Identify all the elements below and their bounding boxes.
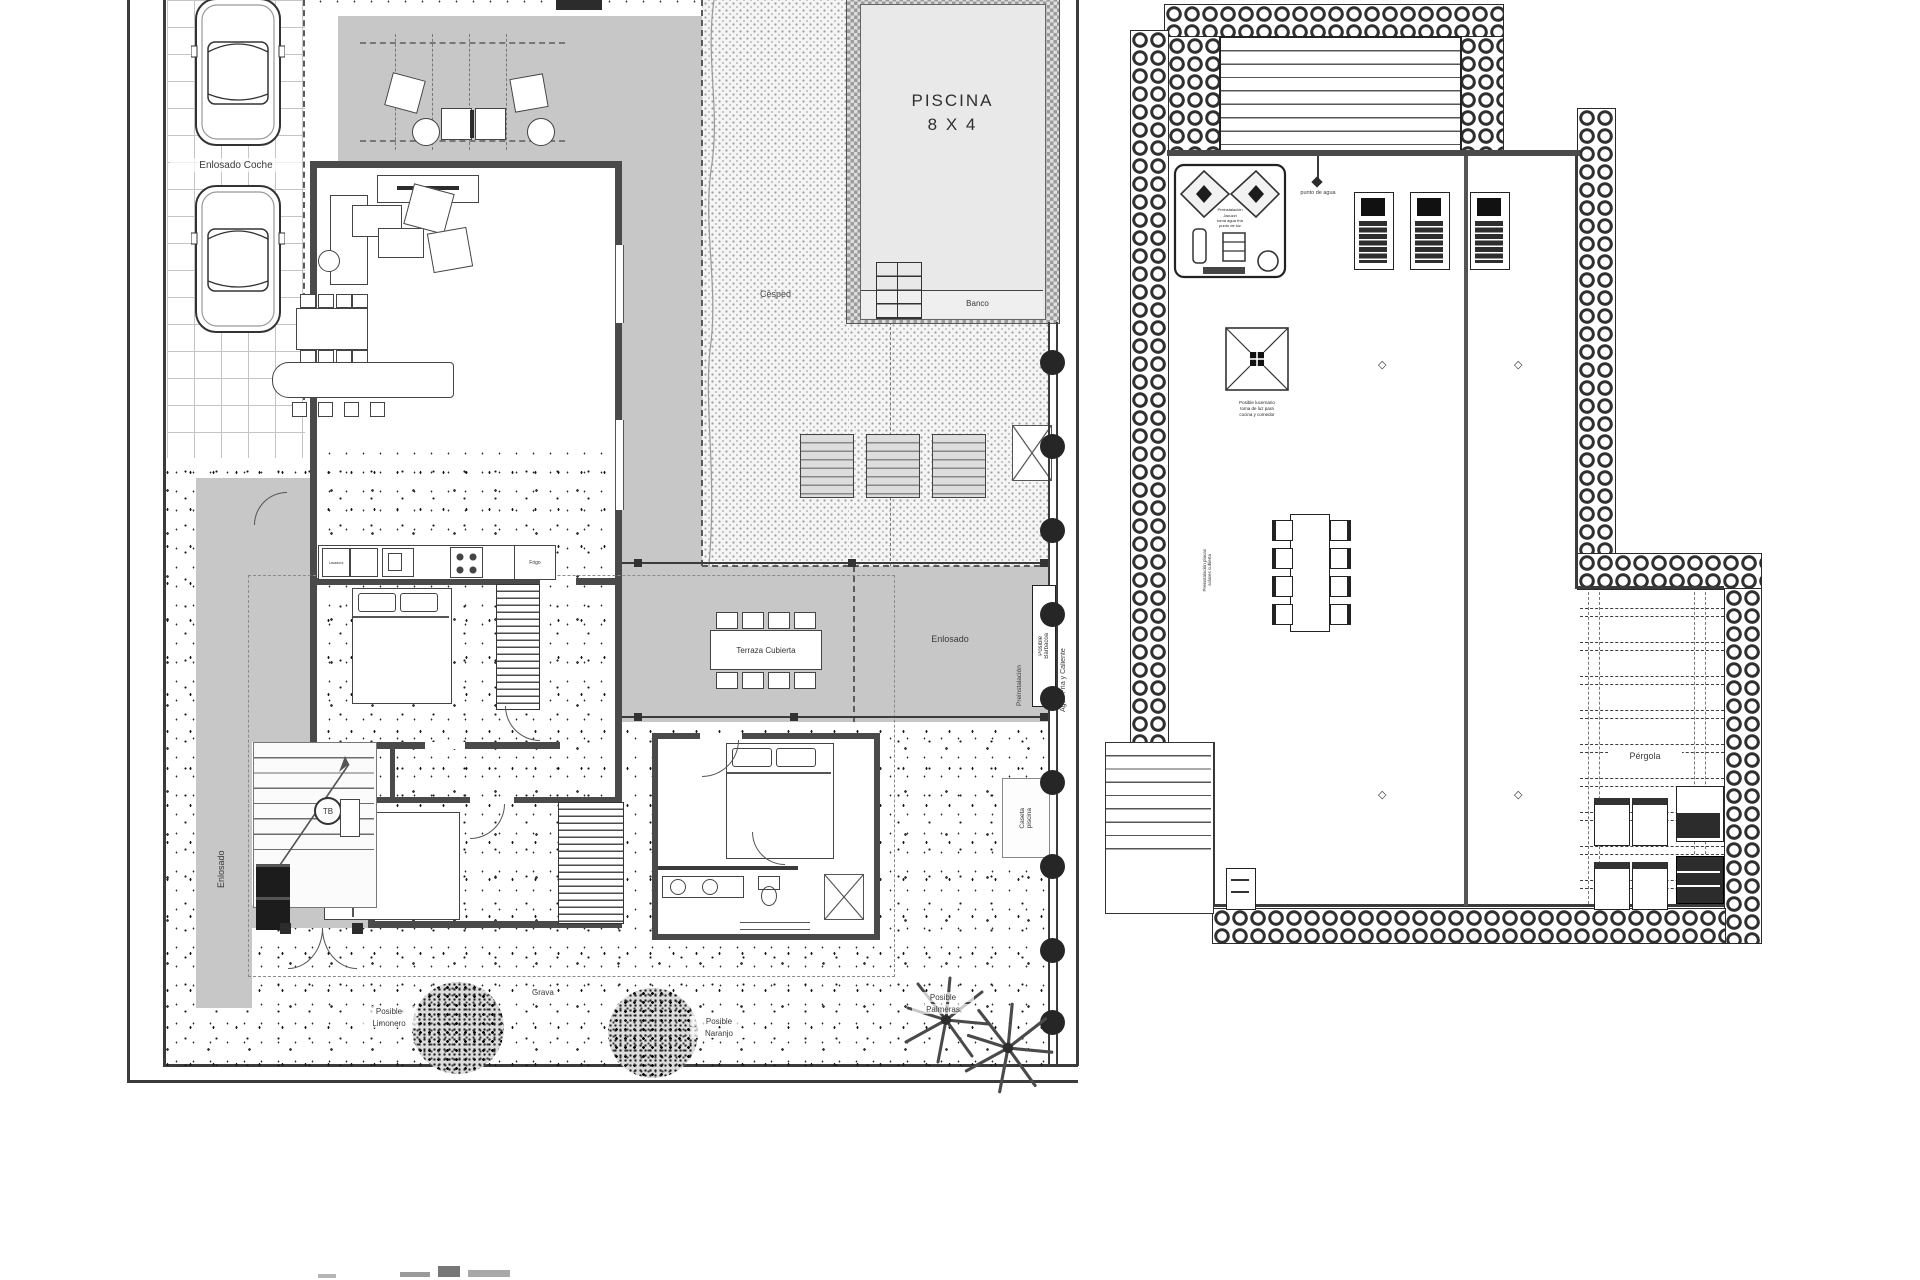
- kitchen-island-icon: [272, 362, 454, 398]
- chair-icon: [1272, 604, 1293, 625]
- chair-icon: [352, 294, 368, 308]
- chair-icon: [768, 612, 790, 629]
- chair-icon: [1272, 576, 1293, 597]
- orange-tree-label-1: Posible: [690, 1016, 748, 1026]
- plot-outer-wall: [127, 0, 130, 1083]
- sketch-fragment: [438, 1266, 460, 1277]
- water-point-label: punto de agua: [1288, 188, 1348, 197]
- armchair-icon: [427, 227, 473, 273]
- pergola-dash: [506, 34, 507, 150]
- pergola-beam: [1580, 608, 1724, 617]
- pillar: [634, 559, 642, 567]
- walkway-label: Enlosado: [216, 788, 226, 888]
- chair-icon: [1272, 520, 1293, 541]
- pergola-beam: [1580, 846, 1724, 855]
- pillar: [790, 713, 798, 721]
- pillow: [776, 748, 816, 767]
- wardrobe: [496, 584, 540, 710]
- window: [615, 420, 624, 510]
- sketch-fragment: [468, 1270, 510, 1277]
- tree-icon: [412, 982, 504, 1074]
- jacuzzi-note-line: punto de luz: [1219, 223, 1241, 228]
- chair-icon: [742, 612, 764, 629]
- sun-lounger-icon: [1470, 192, 1510, 270]
- outdoor-table-icon: [1676, 856, 1724, 904]
- bin-icon: [256, 864, 290, 897]
- chair-icon: [716, 612, 738, 629]
- jacuzzi-note: Preinstalación Jacuzzi toma agua fría pu…: [1192, 203, 1268, 233]
- sink-bowl: [388, 553, 402, 571]
- pillar: [848, 559, 856, 567]
- roof-edge-cobble: [1167, 36, 1221, 152]
- sketch-fragment: [400, 1272, 430, 1277]
- lawn-label: Césped: [760, 289, 791, 299]
- pool-shed-label-2: piscina: [1026, 808, 1033, 828]
- stool-icon: [344, 402, 359, 417]
- stool-icon: [292, 402, 307, 417]
- plot-border-right: [1076, 0, 1079, 1066]
- roof-edge-line: [1575, 156, 1578, 588]
- utility-box: [1226, 868, 1256, 910]
- sun-lounger-icon: [1410, 192, 1450, 270]
- chair-icon: [318, 294, 334, 308]
- car-icon: [191, 183, 285, 335]
- outdoor-seat-icon: [1632, 798, 1668, 846]
- roof-divider-line: [1464, 156, 1468, 906]
- chair-icon: [1330, 576, 1351, 597]
- skylight-icon: [1224, 326, 1290, 392]
- chair-gap: [470, 110, 474, 138]
- blanket-line: [353, 616, 449, 618]
- chair-icon: [1272, 548, 1293, 569]
- terrace-dashed-edge: [702, 565, 1050, 567]
- shower: [824, 874, 864, 920]
- shrub-icon: [1040, 434, 1065, 459]
- orange-tree-label-2: Naranjo: [690, 1028, 748, 1038]
- pool-title: PISCINA: [880, 92, 1025, 110]
- tb-panel: TB: [314, 797, 342, 825]
- roof-edge-cobble: [1130, 30, 1169, 744]
- wardrobe: [558, 802, 624, 924]
- toilet-bowl: [761, 886, 777, 906]
- tree-icon: [608, 988, 698, 1078]
- solar-note: Preinstalación placas solares cubierta: [1194, 515, 1220, 625]
- dining-table-icon: [1290, 514, 1330, 632]
- shrub-icon: [1040, 770, 1065, 795]
- water-point-marker: [1311, 176, 1322, 187]
- stair-treads: [1106, 743, 1211, 859]
- pool-shed-label-1: Caseta: [1019, 808, 1026, 829]
- roof-edge-cobble: [1458, 36, 1504, 152]
- sun-lounger-icon: [800, 434, 854, 498]
- sketch-fragment: [318, 1274, 336, 1278]
- sun-lounger-icon: [932, 434, 986, 498]
- armchair-icon: [509, 73, 548, 112]
- side-table-icon: [318, 250, 340, 272]
- lemon-tree-label-2: Limonero: [360, 1018, 418, 1028]
- chair-icon: [768, 672, 790, 689]
- drain-diamond-icon: ◇: [1378, 358, 1386, 371]
- chair-icon: [794, 612, 816, 629]
- sink-icon: [670, 879, 686, 895]
- chair-icon: [441, 108, 472, 140]
- pergola-post-line: [1599, 592, 1600, 904]
- shrub-icon: [1040, 518, 1065, 543]
- skylight-note: Posible lucernario toma de luz para coci…: [1198, 396, 1316, 422]
- shrub-icon: [1040, 854, 1065, 879]
- roof-wall: [1167, 150, 1580, 156]
- palms-label-2: Palmeras: [912, 1004, 974, 1014]
- pool-steps-divider: [897, 262, 898, 317]
- fridge: Frigo: [514, 545, 556, 580]
- shrub-icon: [1040, 938, 1065, 963]
- chair-icon: [300, 294, 316, 308]
- pergola-beam: [1580, 710, 1724, 719]
- outdoor-seat-icon: [1632, 862, 1668, 910]
- solar-note-line: solares cubierta: [1207, 554, 1212, 586]
- roof-edge-cobble: [1577, 553, 1762, 590]
- bbq-label-2: Barbacoa: [1044, 633, 1050, 659]
- roof-edge-line: [1575, 586, 1724, 589]
- pillow: [358, 593, 396, 612]
- roof-edge-cobble: [1164, 4, 1504, 38]
- chair-icon: [1330, 604, 1351, 625]
- wall: [310, 161, 622, 168]
- outdoor-seat-icon: [1594, 798, 1630, 846]
- planting-edge: [700, 0, 726, 566]
- pillow: [400, 593, 438, 612]
- shrub-icon: [1040, 350, 1065, 375]
- sink-icon: [702, 879, 718, 895]
- chair-icon: [336, 294, 352, 308]
- window: [615, 245, 624, 323]
- appliance: [350, 548, 378, 577]
- round-table-icon: [412, 118, 440, 146]
- sun-lounger-icon: [1354, 192, 1394, 270]
- sun-lounger-icon: [866, 434, 920, 498]
- plot-outer-wall-bottom: [127, 1080, 1078, 1083]
- pool-steps: [876, 262, 922, 319]
- terrace-edge-line: [622, 562, 1050, 564]
- terrace-table: Terraza Cubierta: [710, 630, 822, 670]
- skylight-note-line: cocina y comedor: [1239, 412, 1274, 418]
- stool-icon: [370, 402, 385, 417]
- gate-top: [556, 0, 602, 10]
- pergola-post-line: [1588, 592, 1589, 904]
- west-walkway-area: [196, 478, 252, 1008]
- pillar: [1040, 559, 1048, 567]
- coffee-table-icon: [378, 228, 424, 258]
- pillar: [634, 713, 642, 721]
- pergola-beam: [1580, 642, 1724, 651]
- pool-size: 8 X 4: [880, 116, 1025, 134]
- roof-edge-cobble: [1577, 108, 1616, 555]
- lemon-tree-label-1: Posible: [360, 1006, 418, 1016]
- pillow: [732, 748, 772, 767]
- stool-icon: [318, 402, 333, 417]
- round-table-icon: [527, 118, 555, 146]
- chair-icon: [1330, 548, 1351, 569]
- gravel-label: Grava: [530, 988, 556, 997]
- drain-diamond-icon: ◇: [1514, 788, 1522, 801]
- driveway-label: Enlosado Coche: [170, 158, 302, 172]
- car-icon: [191, 0, 285, 148]
- chair-icon: [475, 108, 506, 140]
- dining-table-icon: [296, 308, 368, 350]
- outdoor-seat-icon: [1594, 862, 1630, 910]
- shrub-icon: [1040, 686, 1065, 711]
- chair-icon: [1330, 520, 1351, 541]
- utility-box: [340, 799, 360, 837]
- wall: [615, 161, 622, 585]
- pergola-dash: [360, 42, 565, 44]
- chair-icon: [742, 672, 764, 689]
- stair-bulkhead: [1219, 36, 1462, 154]
- preinstall-label: Preinstalación: [1016, 588, 1023, 706]
- roof-edge-cobble: [1724, 588, 1762, 944]
- pergola-label: Pérgola: [1608, 748, 1682, 763]
- terrace-edge-line: [622, 716, 1050, 718]
- pergola-beam: [1580, 676, 1724, 685]
- floor-plan-sheet: Enlosado Coche: [0, 0, 1920, 1280]
- drain-diamond-icon: ◇: [1514, 358, 1522, 371]
- side-terrace-area: [622, 166, 702, 566]
- appliance: Lavadora: [322, 548, 350, 577]
- palms-label-1: Posible: [912, 992, 974, 1002]
- paved-terrace-label: Enlosado: [900, 632, 1000, 646]
- pillar: [1040, 713, 1048, 721]
- shrub-icon: [1040, 602, 1065, 627]
- pool-bench-label: Banco: [930, 296, 1025, 310]
- drain-diamond-icon: ◇: [1378, 788, 1386, 801]
- cooktop-icon: [450, 547, 483, 578]
- outdoor-table-icon: [1676, 786, 1724, 842]
- chair-icon: [716, 672, 738, 689]
- blanket-line: [727, 772, 831, 774]
- chair-icon: [794, 672, 816, 689]
- lawn-dashed-edge: [701, 0, 703, 566]
- roof-edge-cobble: [1212, 908, 1726, 944]
